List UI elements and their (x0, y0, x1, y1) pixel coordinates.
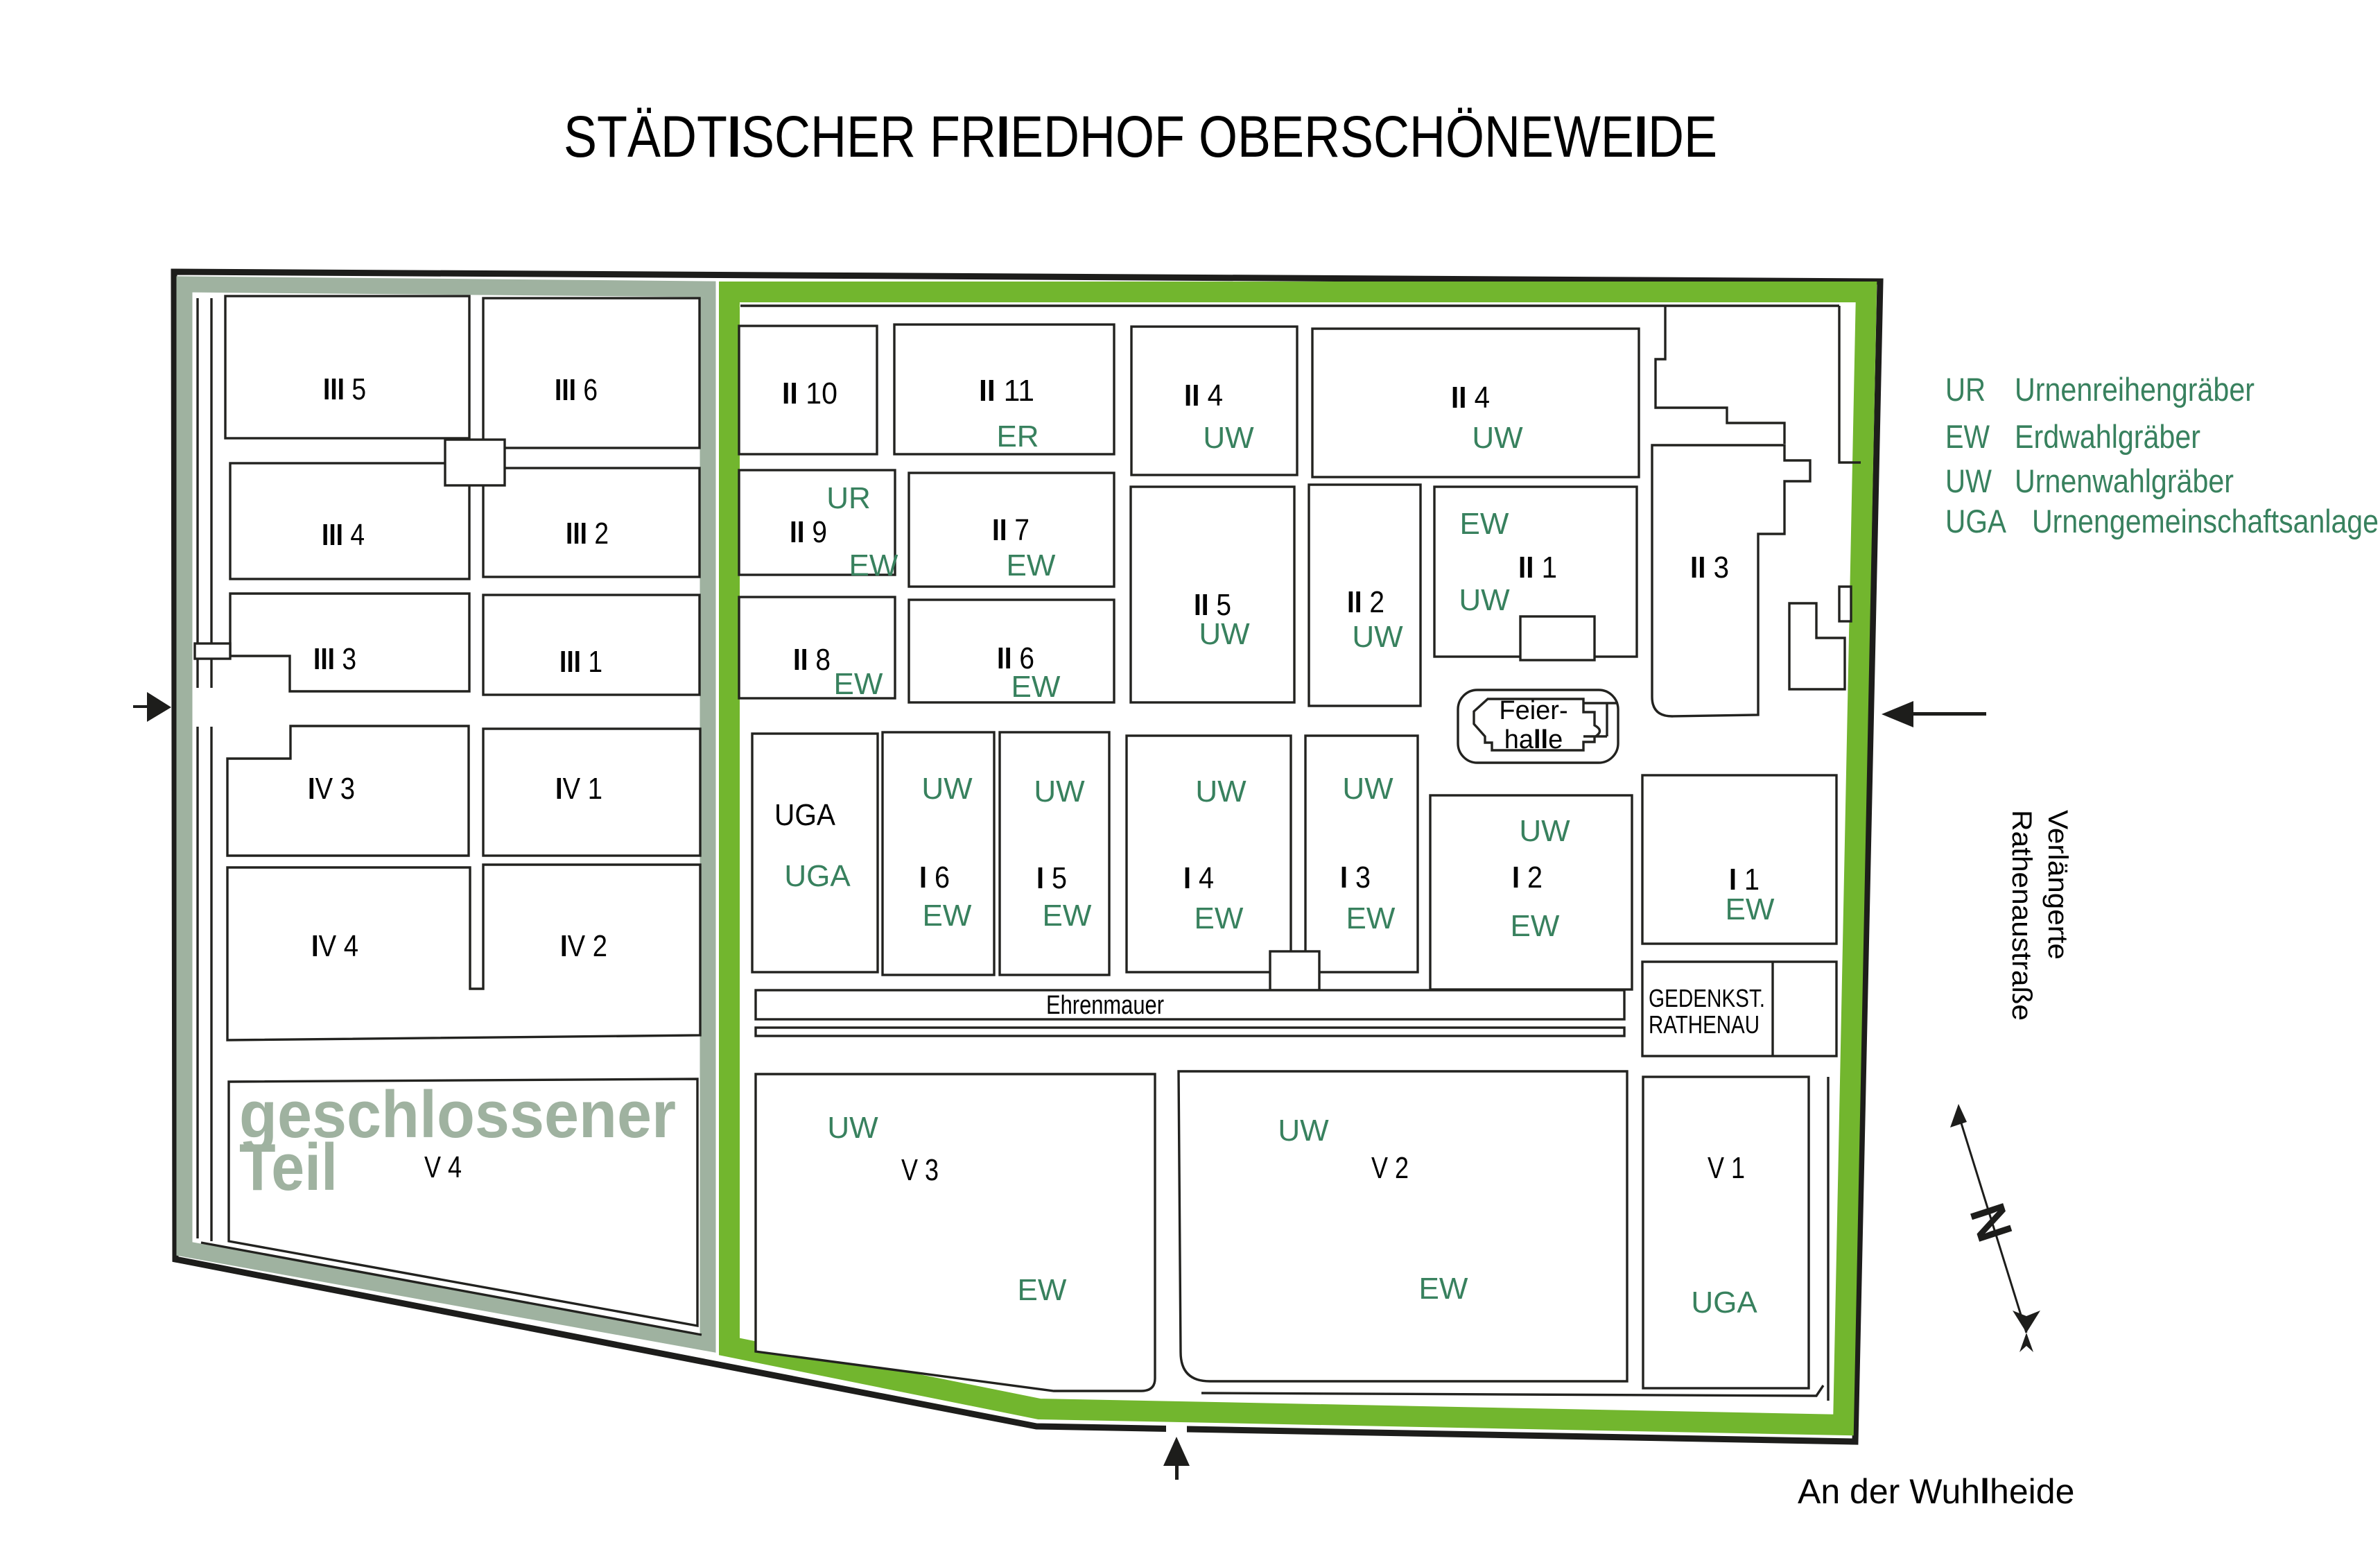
svg-text:Urnenwahlgräber: Urnenwahlgräber (2015, 463, 2234, 499)
svg-text:IV 2: IV 2 (560, 929, 607, 963)
svg-text:EW: EW (1018, 1273, 1067, 1307)
svg-text:II 3: II 3 (1690, 551, 1729, 585)
svg-text:I 3: I 3 (1340, 861, 1371, 894)
svg-text:UW: UW (1519, 814, 1570, 848)
svg-text:RATHENAU: RATHENAU (1649, 1010, 1760, 1039)
svg-text:UW: UW (1278, 1114, 1329, 1148)
svg-text:IV 1: IV 1 (555, 772, 602, 806)
svg-text:V 2: V 2 (1371, 1151, 1409, 1185)
svg-text:Ehrenmauer: Ehrenmauer (1046, 991, 1164, 1020)
svg-text:II 2: II 2 (1347, 585, 1384, 619)
svg-text:I 2: I 2 (1512, 861, 1543, 894)
svg-text:II 1: II 1 (1518, 551, 1557, 585)
svg-text:III 3: III 3 (313, 642, 356, 676)
svg-text:UR: UR (826, 481, 871, 515)
svg-text:V 3: V 3 (901, 1153, 939, 1187)
svg-text:Urnenreihengräber: Urnenreihengräber (2015, 371, 2255, 408)
svg-text:UR: UR (1945, 371, 1986, 408)
svg-text:IV 4: IV 4 (311, 929, 358, 963)
svg-text:EW: EW (1043, 899, 1092, 933)
svg-text:UGA: UGA (774, 798, 836, 832)
svg-text:UW: UW (1342, 772, 1393, 806)
svg-text:UW: UW (827, 1111, 878, 1145)
svg-text:UW: UW (1195, 775, 1247, 809)
svg-text:ER: ER (996, 420, 1039, 453)
svg-text:An der Wuhlheide: An der Wuhlheide (1798, 1472, 2074, 1511)
svg-text:EW: EW (1195, 901, 1244, 935)
svg-text:UW: UW (1199, 617, 1250, 651)
svg-text:EW: EW (1460, 507, 1509, 541)
svg-text:UW: UW (1945, 463, 1992, 499)
svg-text:Erdwahlgräber: Erdwahlgräber (2015, 418, 2200, 455)
svg-text:UW: UW (1034, 775, 1085, 809)
svg-text:UW: UW (1472, 421, 1523, 455)
svg-text:Verlängerte: Verlängerte (2042, 810, 2073, 960)
svg-text:I 1: I 1 (1729, 863, 1760, 897)
svg-text:UW: UW (1203, 421, 1254, 455)
svg-text:STÄDTISCHER FRIEDHOF OBERSCHÖN: STÄDTISCHER FRIEDHOF OBERSCHÖNEWEIDE (564, 104, 1717, 169)
svg-text:EW: EW (849, 548, 898, 582)
svg-text:II 10: II 10 (782, 377, 837, 410)
svg-text:UGA: UGA (784, 859, 851, 893)
svg-text:Teil: Teil (239, 1130, 338, 1204)
svg-text:II 9: II 9 (790, 515, 827, 549)
svg-text:UW: UW (921, 772, 973, 806)
svg-text:halle: halle (1504, 725, 1563, 754)
svg-text:III 1: III 1 (559, 645, 602, 679)
svg-text:II 4: II 4 (1184, 379, 1223, 413)
svg-text:III 6: III 6 (555, 373, 598, 407)
svg-text:EW: EW (1007, 548, 1056, 582)
svg-text:III 5: III 5 (323, 372, 366, 406)
svg-text:I 5: I 5 (1036, 861, 1067, 895)
svg-text:EW: EW (1945, 418, 1990, 455)
svg-text:EW: EW (923, 899, 972, 933)
svg-text:UW: UW (1352, 620, 1403, 654)
svg-text:III 4: III 4 (322, 518, 365, 552)
svg-text:EW: EW (1419, 1272, 1468, 1306)
svg-text:EW: EW (1011, 670, 1061, 704)
svg-text:IV 3: IV 3 (308, 772, 355, 806)
svg-text:V 1: V 1 (1708, 1151, 1745, 1185)
svg-text:EW: EW (1726, 892, 1775, 926)
svg-text:II 11: II 11 (979, 374, 1034, 408)
svg-text:EW: EW (834, 667, 883, 701)
svg-text:UGA: UGA (1945, 503, 2007, 539)
svg-text:UW: UW (1459, 583, 1510, 617)
svg-text:GEDENKST.: GEDENKST. (1649, 984, 1765, 1012)
svg-text:Rathenaustraße: Rathenaustraße (2006, 810, 2037, 1021)
svg-text:EW: EW (1511, 909, 1560, 943)
svg-text:I 6: I 6 (919, 861, 950, 894)
svg-text:UGA: UGA (1691, 1286, 1757, 1320)
svg-text:II 4: II 4 (1451, 381, 1490, 415)
svg-text:II 7: II 7 (992, 513, 1030, 547)
svg-text:Feier-: Feier- (1499, 696, 1567, 725)
svg-text:V 4: V 4 (424, 1150, 462, 1184)
svg-text:II 8: II 8 (793, 643, 831, 677)
svg-text:I 4: I 4 (1183, 861, 1214, 895)
svg-text:Urnengemeinschaftsanlage: Urnengemeinschaftsanlage (2032, 503, 2379, 539)
svg-text:III 2: III 2 (566, 517, 609, 551)
svg-text:EW: EW (1346, 901, 1396, 935)
